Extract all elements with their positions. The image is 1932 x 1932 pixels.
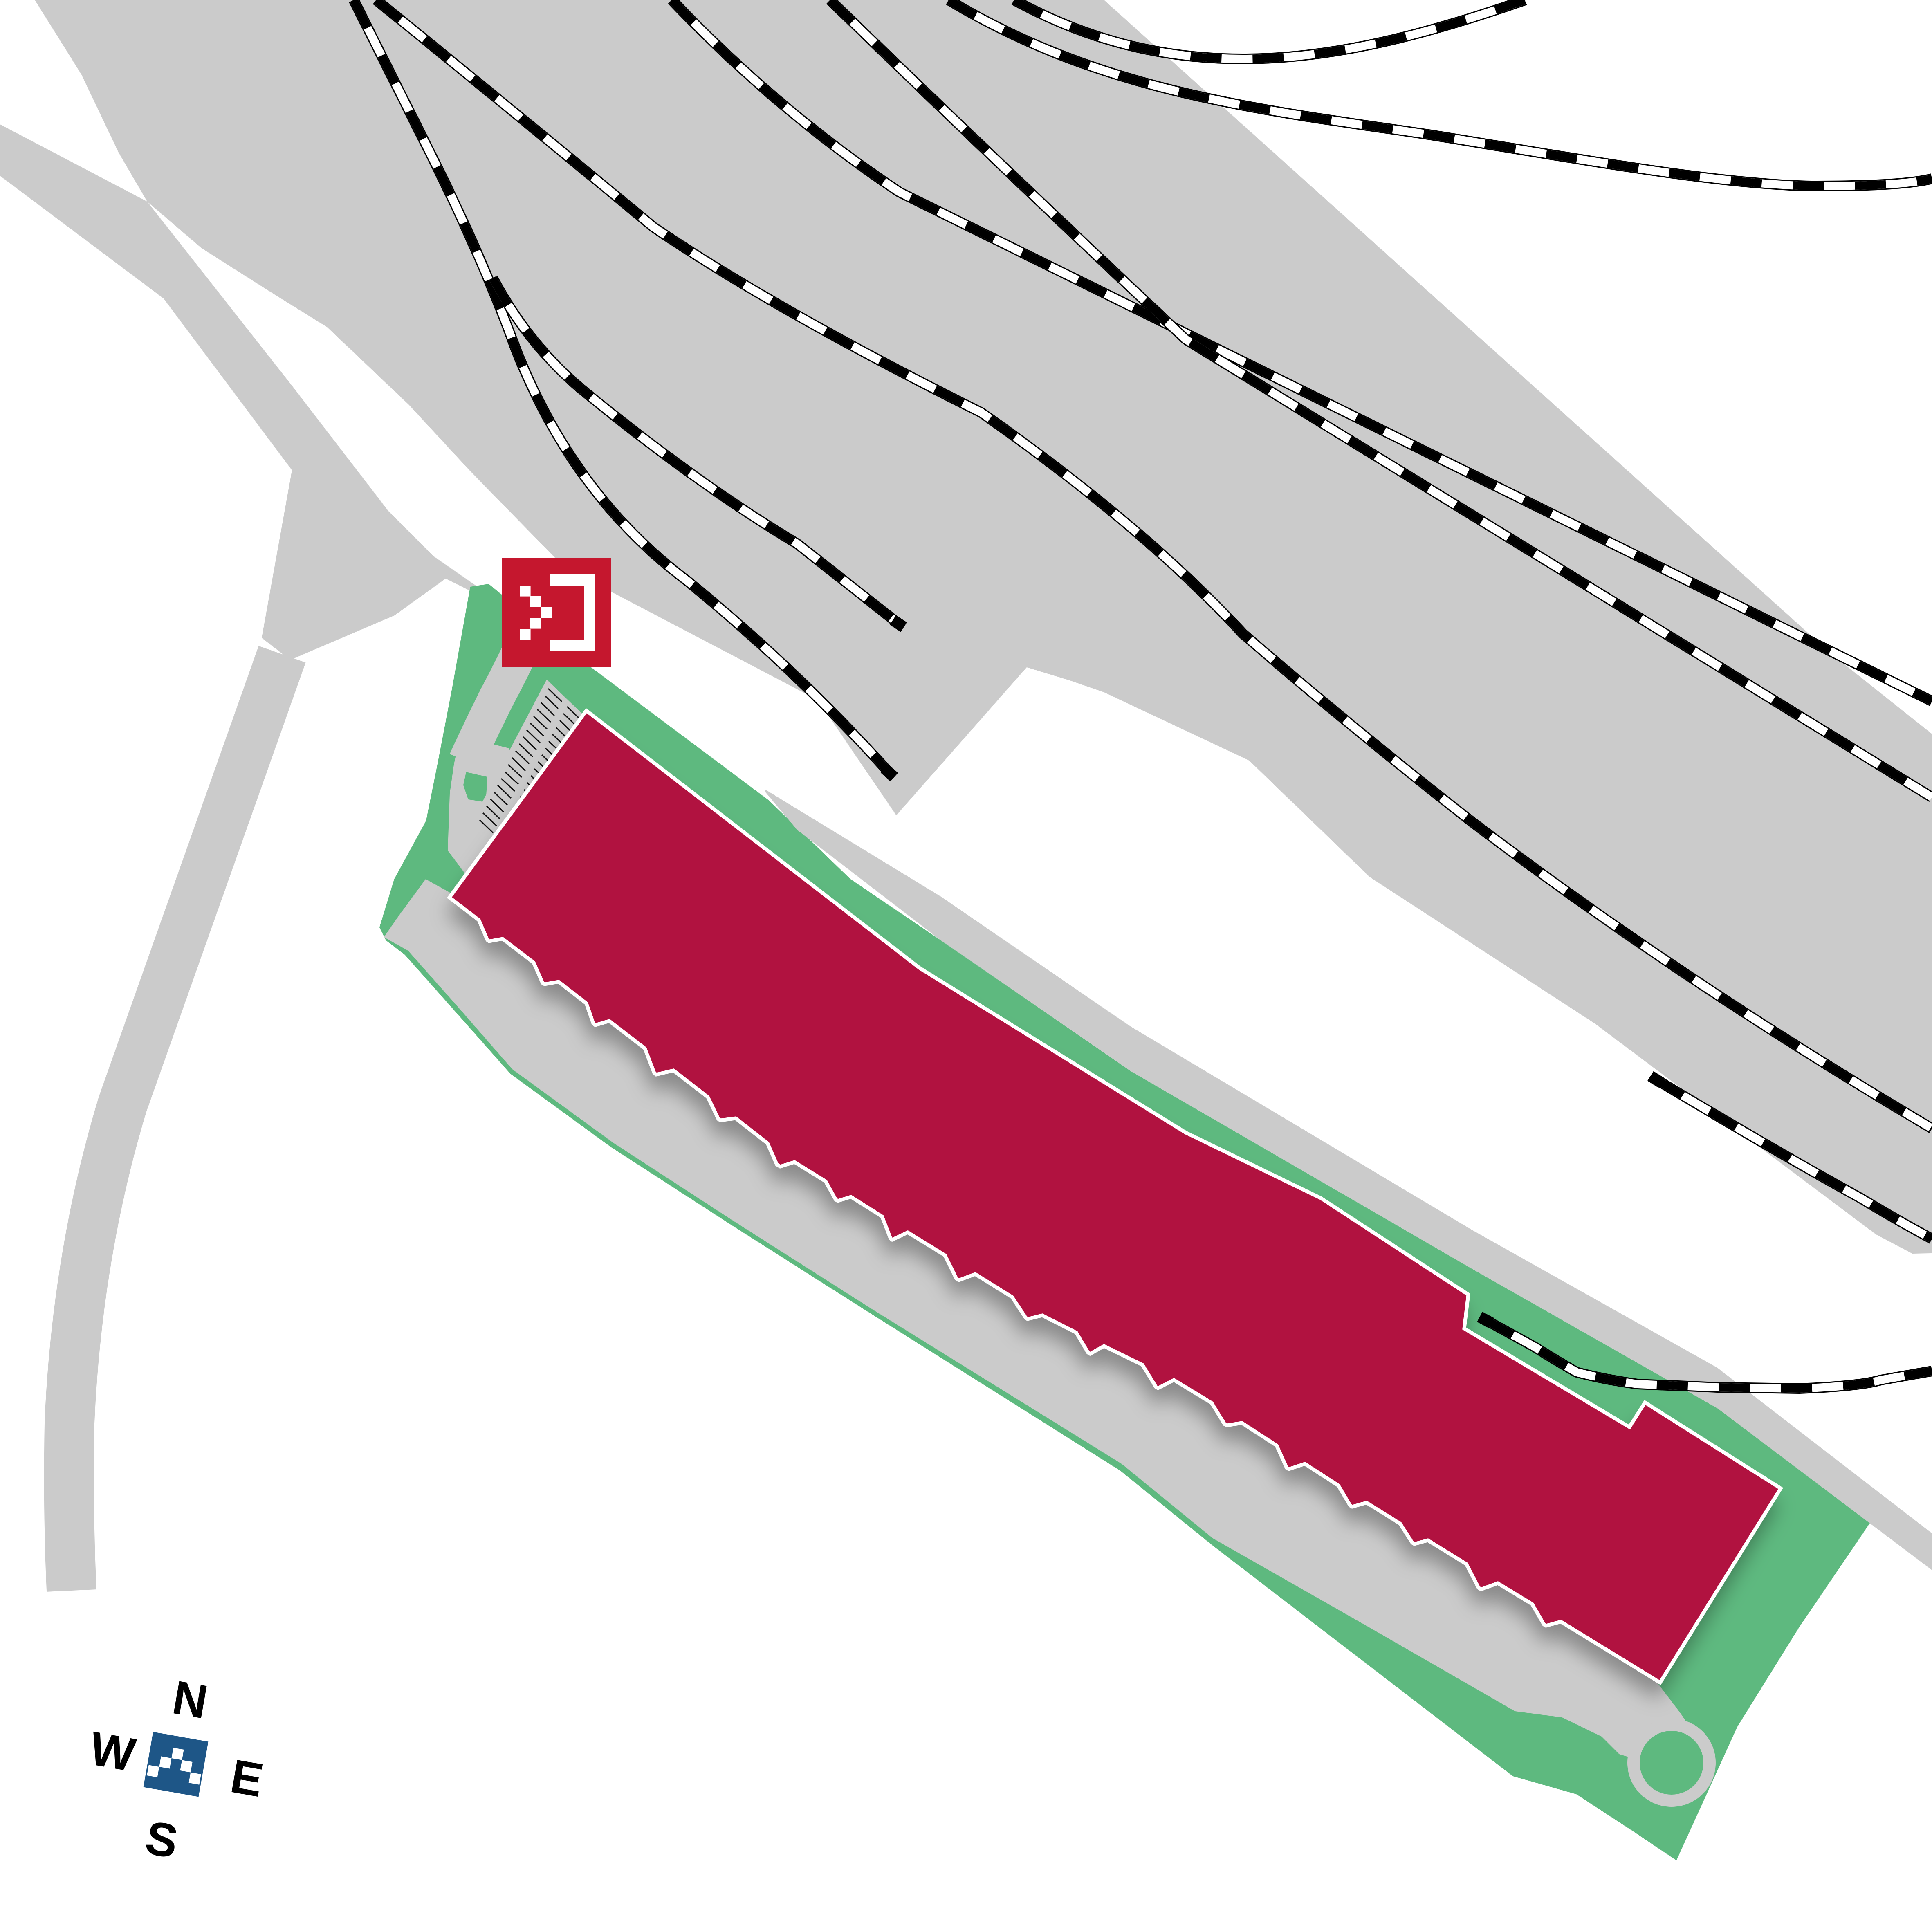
- svg-text:W: W: [86, 1721, 139, 1782]
